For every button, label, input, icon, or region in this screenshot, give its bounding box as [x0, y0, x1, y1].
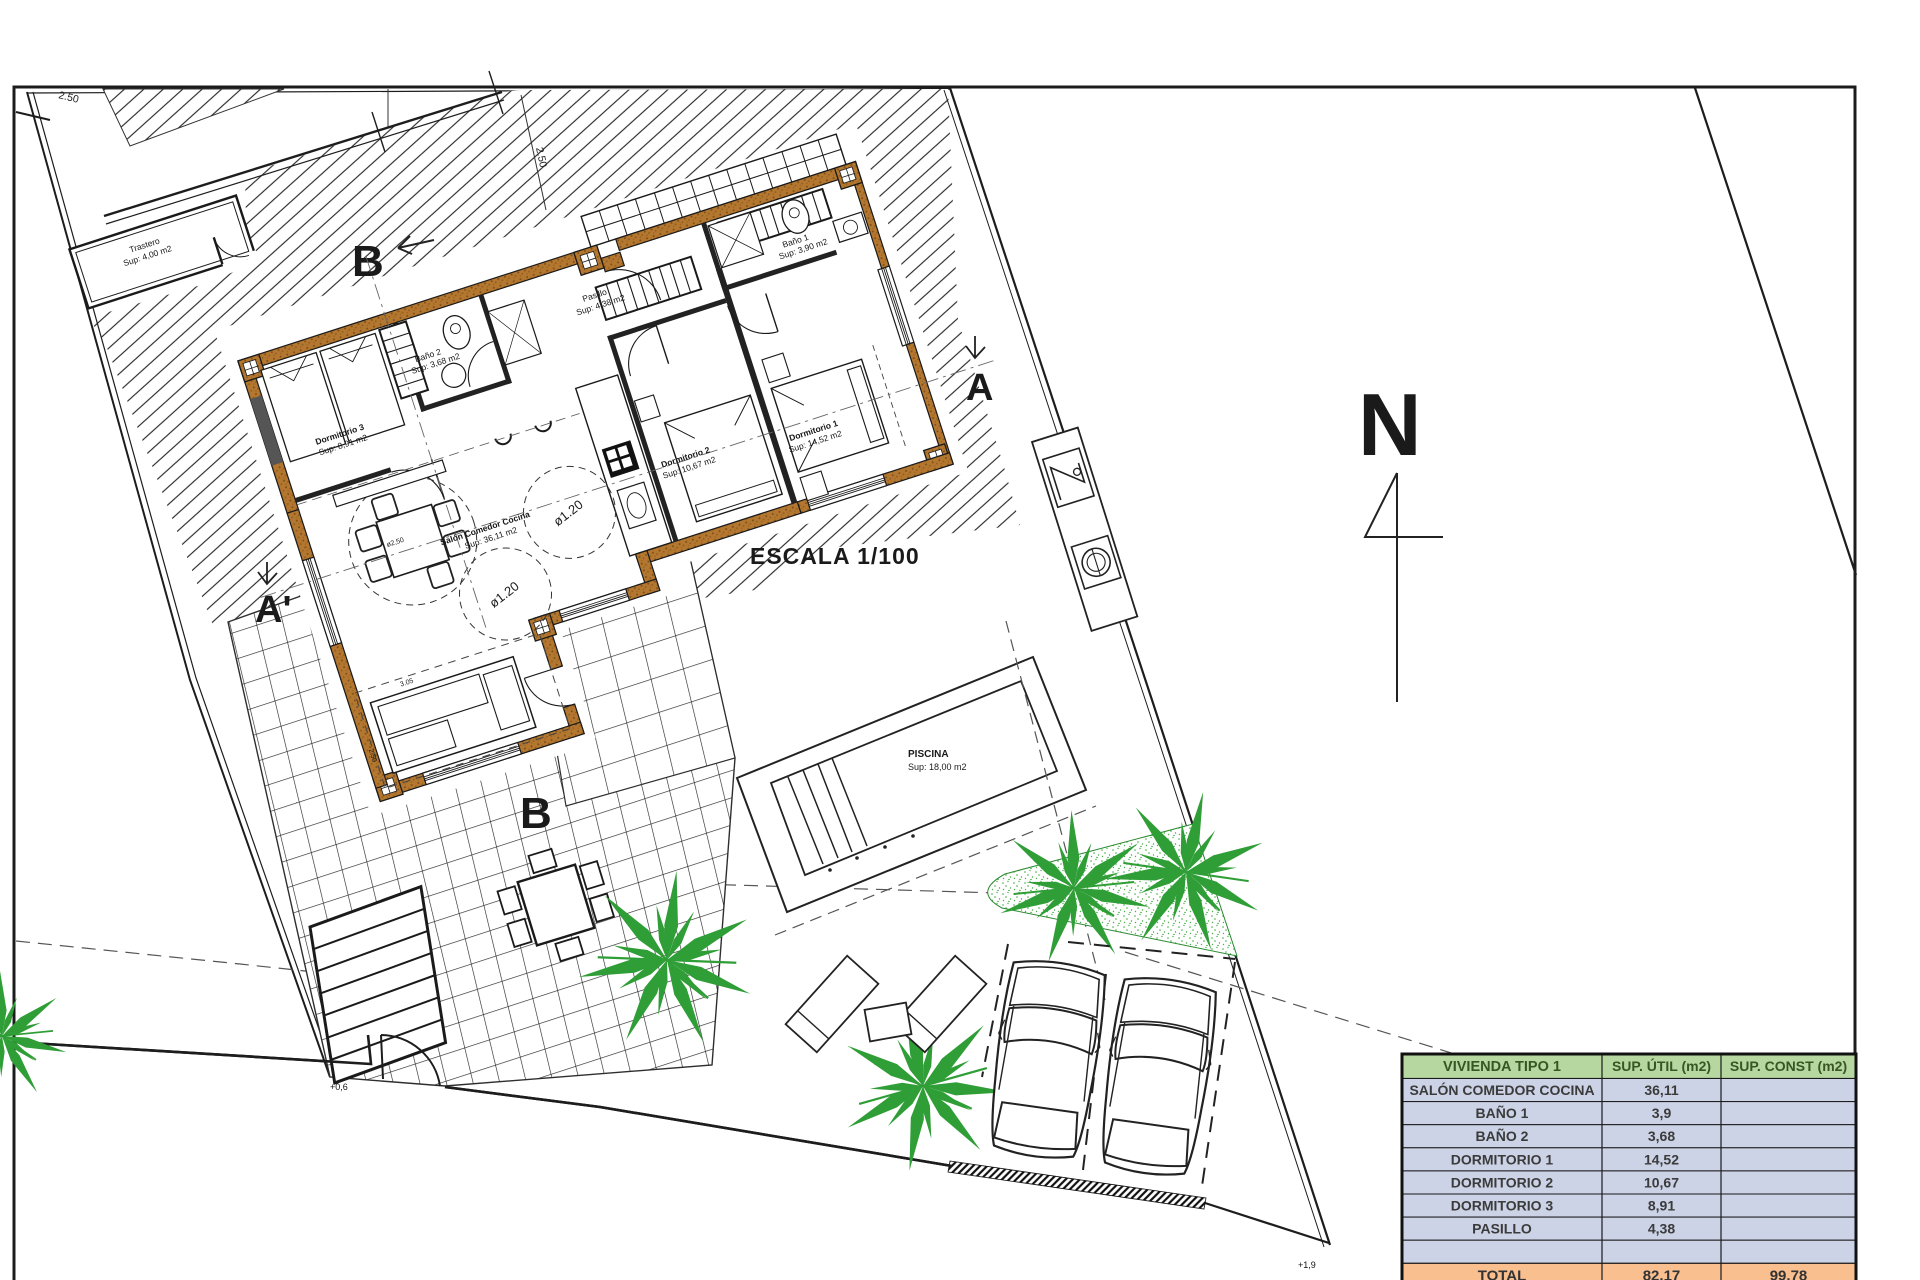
svg-text:8,91: 8,91 [1648, 1198, 1675, 1214]
svg-text:VIVIENDA TIPO 1: VIVIENDA TIPO 1 [1443, 1059, 1561, 1075]
svg-text:SALÓN COMEDOR COCINA: SALÓN COMEDOR COCINA [1409, 1081, 1594, 1098]
svg-text:DORMITORIO 2: DORMITORIO 2 [1451, 1174, 1554, 1190]
svg-text:10,67: 10,67 [1644, 1174, 1679, 1190]
svg-text:4,38: 4,38 [1648, 1221, 1675, 1237]
svg-text:SUP. CONST (m2): SUP. CONST (m2) [1730, 1058, 1847, 1074]
svg-text:Sup: 18,00 m2: Sup: 18,00 m2 [908, 762, 967, 772]
svg-text:99,78: 99,78 [1770, 1267, 1808, 1280]
svg-text:DORMITORIO 3: DORMITORIO 3 [1451, 1198, 1554, 1214]
svg-text:TOTAL: TOTAL [1478, 1267, 1527, 1280]
svg-text:+0,6: +0,6 [330, 1082, 348, 1092]
svg-text:DORMITORIO 1: DORMITORIO 1 [1451, 1151, 1554, 1167]
svg-text:ESCALA 1/100: ESCALA 1/100 [750, 543, 920, 569]
svg-text:A': A' [255, 589, 291, 631]
svg-text:82,17: 82,17 [1643, 1267, 1681, 1280]
svg-text:SUP. ÚTIL (m2): SUP. ÚTIL (m2) [1612, 1057, 1711, 1074]
svg-text:PASILLO: PASILLO [1472, 1221, 1532, 1237]
svg-text:14,52: 14,52 [1644, 1151, 1679, 1167]
svg-text:B: B [520, 789, 552, 838]
svg-text:A: A [966, 367, 993, 409]
svg-text:36,11: 36,11 [1644, 1082, 1678, 1098]
svg-text:BAÑO 2: BAÑO 2 [1476, 1127, 1529, 1144]
svg-text:PISCINA: PISCINA [908, 749, 949, 760]
svg-text:3,9: 3,9 [1652, 1105, 1672, 1121]
svg-text:3,68: 3,68 [1648, 1128, 1675, 1144]
svg-text:+1,9: +1,9 [1298, 1260, 1316, 1270]
svg-text:BAÑO 1: BAÑO 1 [1476, 1104, 1529, 1121]
svg-text:N: N [1358, 375, 1422, 474]
